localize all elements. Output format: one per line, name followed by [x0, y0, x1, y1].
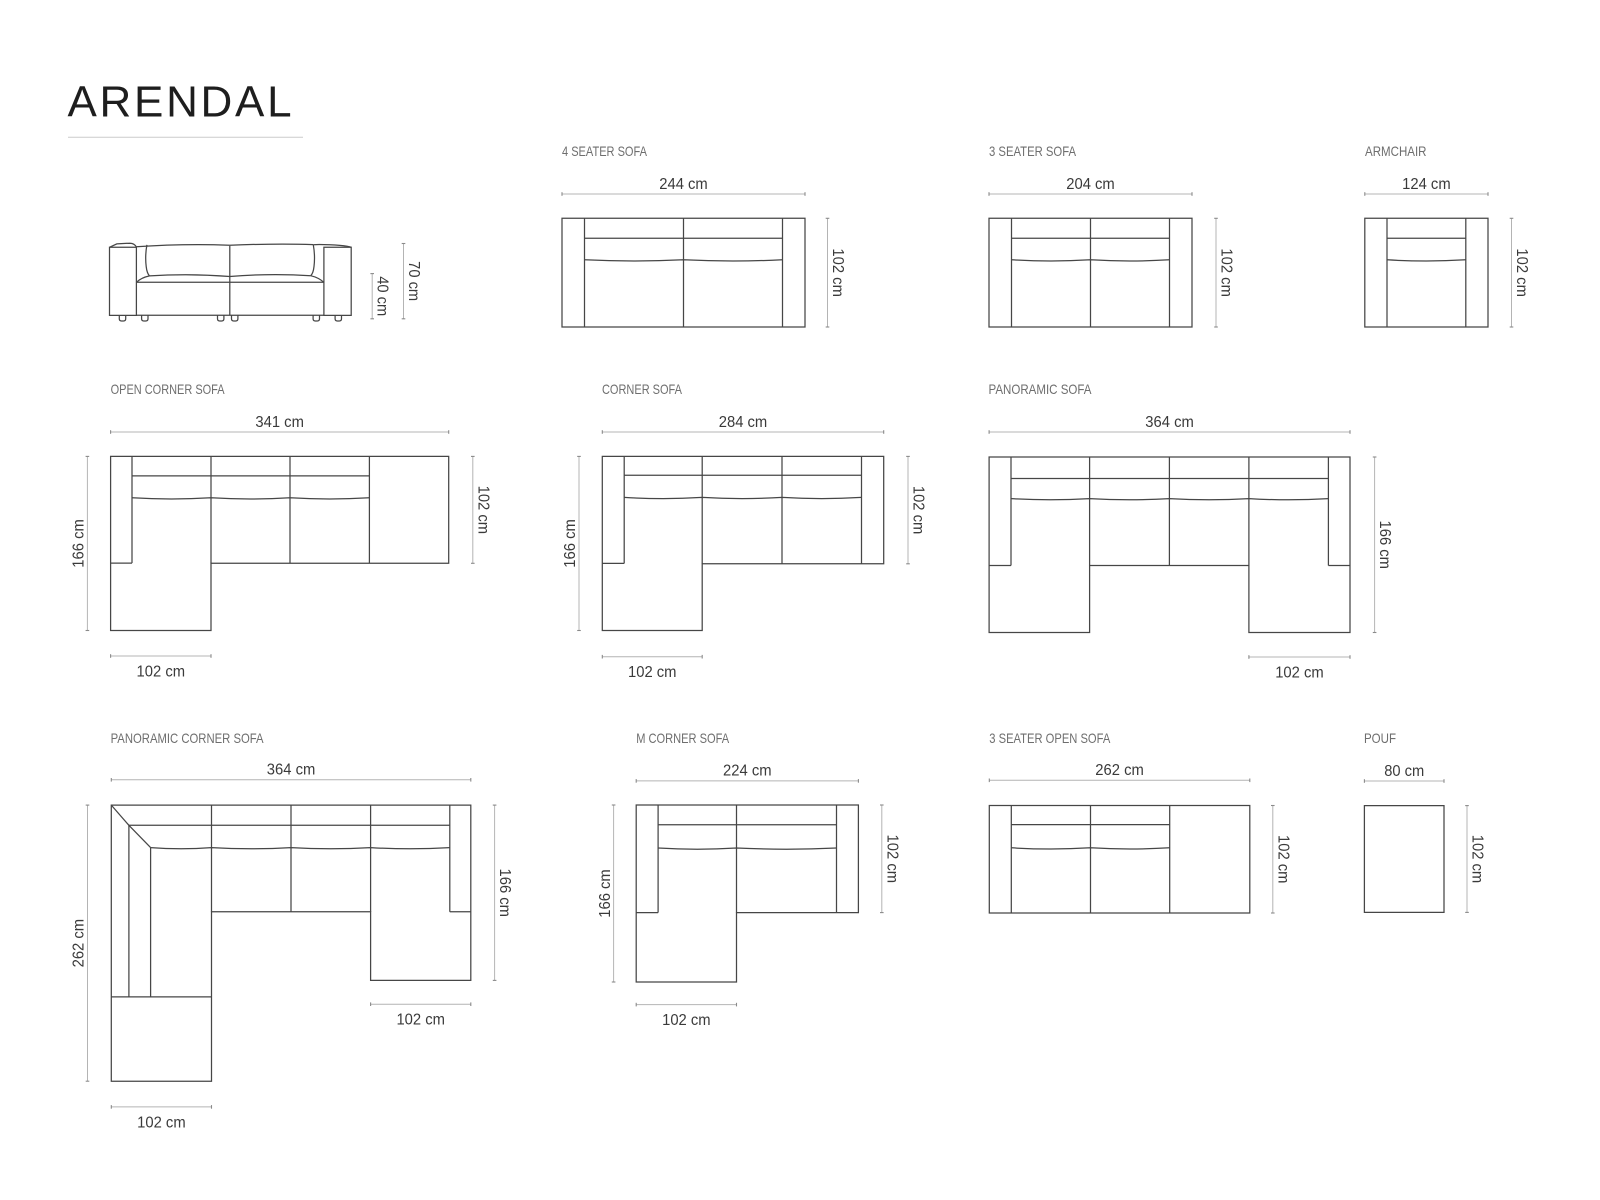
- svg-text:102 cm: 102 cm: [910, 486, 927, 534]
- svg-text:166 cm: 166 cm: [597, 869, 614, 918]
- svg-text:102 cm: 102 cm: [1469, 835, 1486, 884]
- svg-text:262 cm: 262 cm: [1095, 762, 1144, 779]
- svg-text:102 cm: 102 cm: [474, 486, 491, 534]
- svg-text:70 cm: 70 cm: [405, 261, 422, 301]
- svg-text:OPEN CORNER SOFA: OPEN CORNER SOFA: [111, 381, 226, 397]
- svg-text:102 cm: 102 cm: [1513, 248, 1530, 297]
- svg-text:124 cm: 124 cm: [1402, 176, 1451, 193]
- svg-text:102 cm: 102 cm: [1218, 248, 1235, 297]
- svg-text:262 cm: 262 cm: [71, 919, 88, 968]
- svg-text:166 cm: 166 cm: [1376, 521, 1393, 570]
- svg-text:PANORAMIC SOFA: PANORAMIC SOFA: [989, 381, 1093, 397]
- svg-text:102 cm: 102 cm: [628, 664, 677, 681]
- svg-text:244 cm: 244 cm: [659, 176, 708, 193]
- svg-text:166 cm: 166 cm: [496, 869, 513, 918]
- svg-text:102 cm: 102 cm: [1275, 665, 1324, 682]
- svg-text:284 cm: 284 cm: [719, 414, 768, 431]
- svg-text:80 cm: 80 cm: [1384, 763, 1424, 780]
- svg-text:166 cm: 166 cm: [562, 519, 579, 568]
- svg-text:POUF: POUF: [1364, 730, 1396, 746]
- svg-text:364 cm: 364 cm: [1145, 414, 1194, 431]
- svg-text:102 cm: 102 cm: [137, 1114, 186, 1131]
- svg-text:102 cm: 102 cm: [829, 248, 846, 297]
- svg-text:PANORAMIC CORNER SOFA: PANORAMIC CORNER SOFA: [111, 730, 265, 746]
- svg-text:102 cm: 102 cm: [396, 1012, 445, 1029]
- svg-text:4 SEATER SOFA: 4 SEATER SOFA: [562, 143, 648, 159]
- svg-text:3 SEATER SOFA: 3 SEATER SOFA: [989, 143, 1077, 159]
- svg-text:CORNER SOFA: CORNER SOFA: [602, 381, 683, 397]
- svg-text:102 cm: 102 cm: [662, 1012, 711, 1029]
- svg-text:3 SEATER OPEN SOFA: 3 SEATER OPEN SOFA: [989, 730, 1111, 746]
- svg-text:M CORNER SOFA: M CORNER SOFA: [636, 730, 730, 746]
- svg-text:ARENDAL: ARENDAL: [68, 78, 295, 127]
- svg-text:364 cm: 364 cm: [267, 762, 316, 779]
- svg-text:224 cm: 224 cm: [723, 763, 772, 780]
- svg-text:40 cm: 40 cm: [374, 276, 391, 316]
- svg-text:102 cm: 102 cm: [137, 664, 186, 681]
- svg-text:166 cm: 166 cm: [71, 519, 88, 568]
- svg-text:ARMCHAIR: ARMCHAIR: [1365, 143, 1427, 159]
- svg-text:102 cm: 102 cm: [883, 835, 900, 884]
- svg-text:341 cm: 341 cm: [255, 414, 304, 431]
- svg-text:102 cm: 102 cm: [1274, 835, 1291, 884]
- svg-text:204 cm: 204 cm: [1066, 176, 1115, 193]
